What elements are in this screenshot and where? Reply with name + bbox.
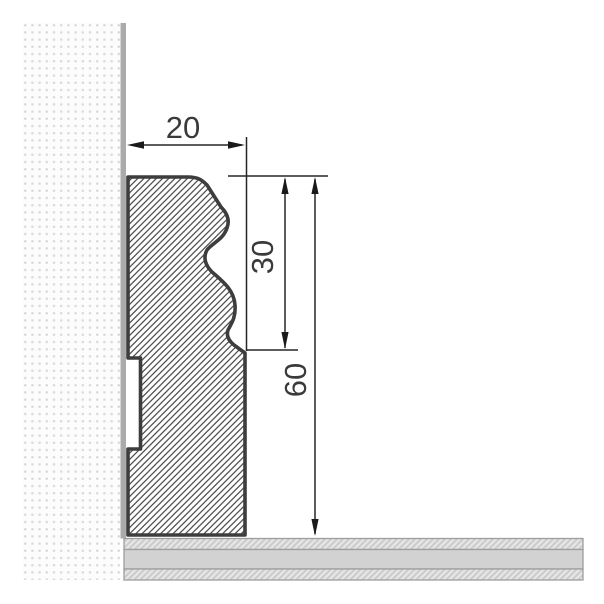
skirting-profile xyxy=(128,177,245,535)
floor-section xyxy=(124,539,583,581)
wall-surface-line xyxy=(121,23,127,539)
dimension-30-arrow-top xyxy=(281,177,288,194)
dimension-molded-height-label: 30 xyxy=(245,240,280,274)
wall-section xyxy=(23,23,120,580)
dimension-width-arrow-right xyxy=(228,141,245,149)
dimension-60-arrow-bottom xyxy=(311,519,318,536)
drawing-canvas: 20 30 60 xyxy=(0,0,604,604)
dimension-60-arrow-top xyxy=(311,177,318,194)
floor-middle-layer xyxy=(124,550,583,570)
dimension-width-arrow-left xyxy=(127,141,144,149)
floor-top-layer xyxy=(124,539,583,550)
dimension-total-height-label: 60 xyxy=(278,363,313,397)
dimension-width-label: 20 xyxy=(166,110,200,145)
technical-drawing: 20 30 60 xyxy=(0,0,604,604)
floor-bottom-layer xyxy=(124,569,583,580)
dimension-30-arrow-bottom xyxy=(281,332,288,349)
